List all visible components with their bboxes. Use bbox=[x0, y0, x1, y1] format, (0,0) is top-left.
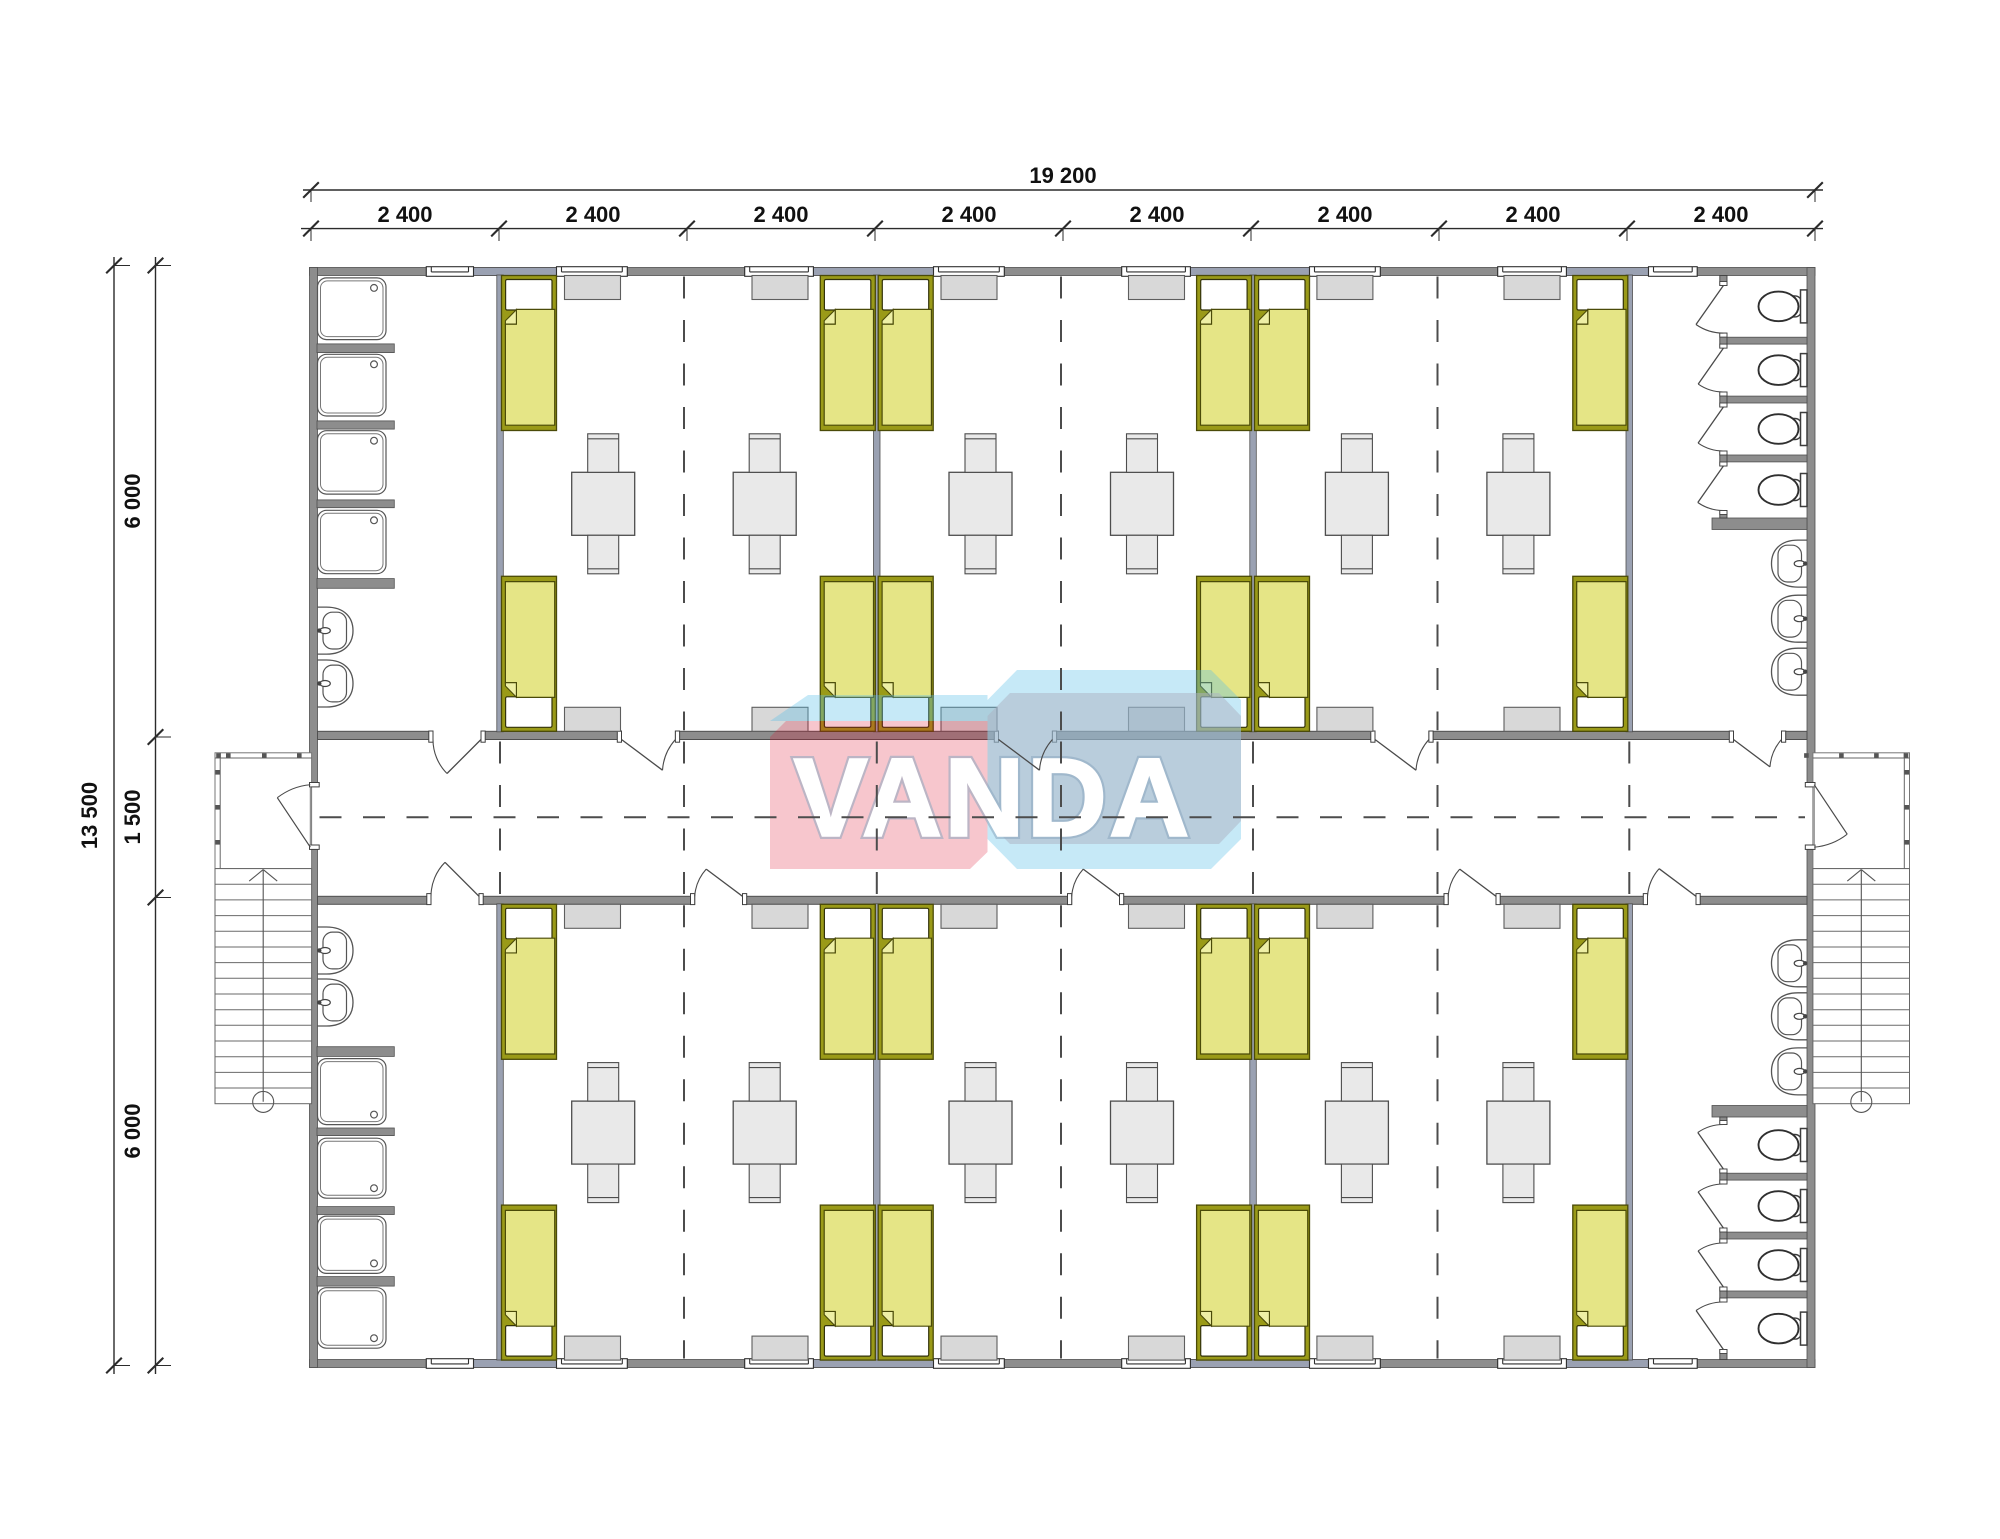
svg-text:13 500: 13 500 bbox=[77, 782, 102, 849]
svg-text:2 400: 2 400 bbox=[377, 202, 432, 227]
svg-text:6 000: 6 000 bbox=[120, 473, 145, 528]
svg-text:6 000: 6 000 bbox=[120, 1103, 145, 1158]
svg-text:2 400: 2 400 bbox=[565, 202, 620, 227]
svg-text:1 500: 1 500 bbox=[120, 789, 145, 844]
svg-text:2 400: 2 400 bbox=[1317, 202, 1372, 227]
svg-text:19 200: 19 200 bbox=[1029, 163, 1096, 188]
svg-text:2 400: 2 400 bbox=[753, 202, 808, 227]
svg-text:2 400: 2 400 bbox=[1129, 202, 1184, 227]
svg-text:2 400: 2 400 bbox=[1693, 202, 1748, 227]
svg-text:2 400: 2 400 bbox=[941, 202, 996, 227]
svg-text:VANDA: VANDA bbox=[794, 737, 1192, 860]
svg-text:2 400: 2 400 bbox=[1505, 202, 1560, 227]
